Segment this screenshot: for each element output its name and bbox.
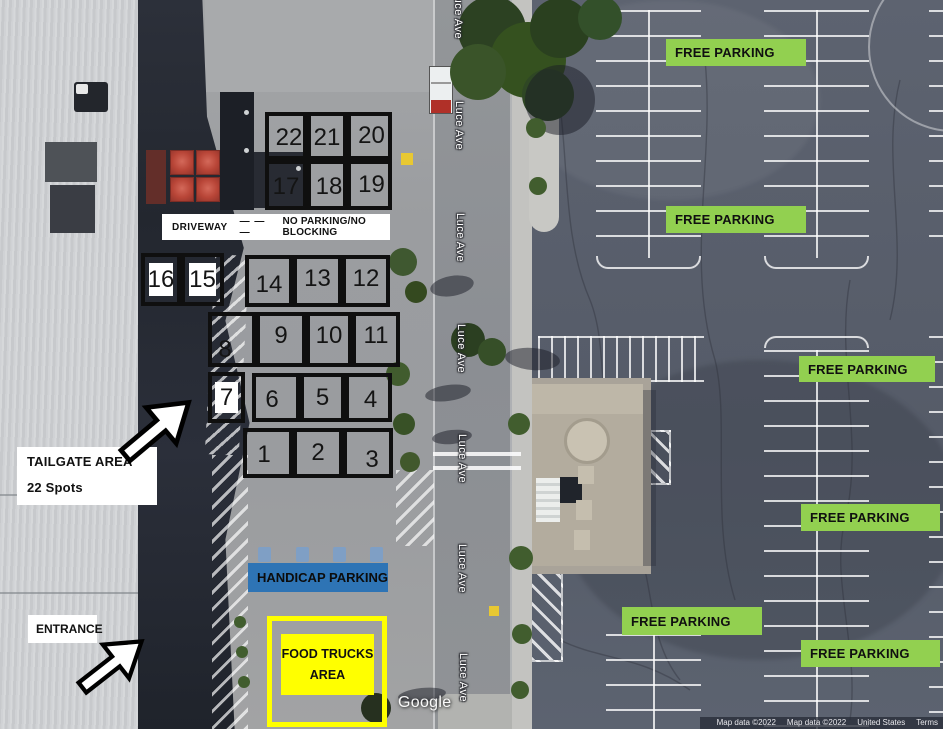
parking-spine-line xyxy=(653,634,655,729)
handicap-stall-glyph xyxy=(370,547,383,562)
map-data-text: Map data ©2022 xyxy=(717,717,776,729)
spot-box-19: 19 xyxy=(347,160,392,210)
handicap-text: HANDICAP PARKING xyxy=(257,570,388,585)
spot-box-21: 21 xyxy=(307,112,347,160)
parking-lines xyxy=(764,256,869,269)
crosswalk-line xyxy=(433,466,521,470)
entrance-label: ENTRANCE xyxy=(28,615,97,643)
spot-number: 13 xyxy=(304,267,331,291)
bush xyxy=(234,616,246,628)
bush xyxy=(238,676,250,688)
roof-seam xyxy=(0,592,138,594)
spot-number: 5 xyxy=(316,386,329,410)
handicap-stall-glyph xyxy=(296,547,309,562)
red-canopy xyxy=(170,177,194,202)
truck-rear xyxy=(431,100,451,113)
spot-box-6: 6 xyxy=(252,373,300,422)
spot-number: 9 xyxy=(274,324,287,348)
free-parking-label: FREE PARKING xyxy=(666,206,806,233)
parking-spine-line xyxy=(816,350,818,729)
parking-lines xyxy=(596,256,701,269)
spot-box-17: 17 xyxy=(265,160,307,210)
curb-yellow-mark xyxy=(401,153,413,165)
tree xyxy=(393,413,415,435)
curb-yellow-mark xyxy=(489,606,499,616)
spot-number: 11 xyxy=(364,324,389,348)
region-text: United States xyxy=(857,717,905,729)
maroon-structure xyxy=(146,150,166,204)
handicap-stall-glyph xyxy=(333,547,346,562)
truck-cab-line xyxy=(431,82,451,84)
building-shadow xyxy=(643,390,656,566)
spot-box-2: 2 xyxy=(293,428,343,478)
street-label-luce-ave: Luce Ave xyxy=(450,213,466,269)
street-label-luce-ave: Luce Ave xyxy=(452,434,468,490)
spot-box-15: 15 xyxy=(181,253,224,306)
tree xyxy=(400,452,420,472)
handicap-stall-glyph xyxy=(258,547,271,562)
street-label-luce-ave: Luce Ave xyxy=(449,101,465,157)
spot-number: 14 xyxy=(256,273,283,297)
google-watermark[interactable]: Google xyxy=(398,694,451,712)
terms-link[interactable]: Terms xyxy=(916,717,938,729)
red-canopy xyxy=(196,150,220,175)
map-attribution: Map data ©2022 Map data ©2022 United Sta… xyxy=(700,717,943,729)
spot-number: 20 xyxy=(358,124,385,148)
red-canopy xyxy=(170,150,194,175)
spot-box-20: 20 xyxy=(347,112,392,160)
food-trucks-line2: AREA xyxy=(310,668,345,682)
spot-box-22: 22 xyxy=(265,112,307,160)
free-parking-label: FREE PARKING xyxy=(801,640,940,667)
building-pad xyxy=(576,500,592,520)
building-round-structure xyxy=(564,418,610,464)
container-dot xyxy=(244,148,249,153)
spot-number: 15 xyxy=(189,268,216,292)
street-label-luce-ave: Luce Ave xyxy=(451,324,467,380)
tree xyxy=(389,248,417,276)
spot-number: 7 xyxy=(220,386,233,410)
parking-lines xyxy=(929,336,943,729)
spot-box-11: 11 xyxy=(352,312,400,367)
rooftop-unit xyxy=(50,185,95,233)
parking-lines xyxy=(538,336,704,382)
container-dot xyxy=(244,110,249,115)
bush xyxy=(236,646,248,658)
bush xyxy=(511,681,529,699)
concrete-area xyxy=(205,0,433,92)
spot-number: 12 xyxy=(353,267,380,291)
food-trucks-label: FOOD TRUCKS AREA xyxy=(281,634,374,695)
curb-hatch xyxy=(396,470,434,546)
tailgate-subtitle: 22 Spots xyxy=(27,480,157,495)
spot-number: 2 xyxy=(311,441,324,465)
spot-box-5: 5 xyxy=(300,373,345,422)
bush xyxy=(509,546,533,570)
parking-spine-line xyxy=(648,10,650,258)
street-label-luce-ave: Luce Ave xyxy=(453,653,469,709)
driveway-text: DRIVEWAY xyxy=(162,222,228,233)
entrance-text: ENTRANCE xyxy=(36,622,103,636)
bush xyxy=(526,118,546,138)
tree xyxy=(405,281,427,303)
spot-box-8: 8 xyxy=(208,312,256,367)
spot-number: 3 xyxy=(365,448,378,472)
rooftop-vehicle-cab xyxy=(76,84,88,94)
no-parking-text: NO PARKING/NO BLOCKING xyxy=(282,216,390,238)
free-parking-label: FREE PARKING xyxy=(799,356,935,382)
spot-number: 22 xyxy=(276,126,303,150)
free-parking-label: FREE PARKING xyxy=(666,39,806,66)
spot-number: 4 xyxy=(364,388,377,412)
driveway-dash-symbol: — — — xyxy=(240,216,271,238)
spot-number: 10 xyxy=(316,324,343,348)
spot-number: 21 xyxy=(314,126,341,150)
parking-lines xyxy=(929,10,943,258)
spot-box-3: 3 xyxy=(343,428,393,478)
spot-box-10: 10 xyxy=(306,312,352,367)
spot-number: 6 xyxy=(265,388,278,412)
spot-number: 18 xyxy=(316,175,343,199)
spot-number: 17 xyxy=(273,175,300,199)
driveway-note-label: DRIVEWAY — — — NO PARKING/NO BLOCKING xyxy=(162,214,390,240)
spot-number: 16 xyxy=(148,268,175,292)
building-roof-light xyxy=(531,384,643,414)
crosswalk-line xyxy=(433,452,521,456)
spot-box-13: 13 xyxy=(293,255,342,307)
food-trucks-line1: FOOD TRUCKS xyxy=(282,647,374,661)
spot-number: 1 xyxy=(257,443,270,467)
red-canopy xyxy=(196,177,220,202)
parking-lines xyxy=(764,350,869,729)
spot-box-1: 1 xyxy=(243,428,293,478)
spot-box-14: 14 xyxy=(245,255,293,307)
parking-lines xyxy=(606,634,701,729)
spot-box-7: 7 xyxy=(208,372,245,423)
free-parking-label: FREE PARKING xyxy=(622,607,762,635)
spot-box-4: 4 xyxy=(345,373,392,422)
spot-number: 19 xyxy=(358,173,385,197)
tree xyxy=(450,44,506,100)
spot-number: 8 xyxy=(218,338,231,362)
free-parking-label: FREE PARKING xyxy=(801,504,940,531)
no-park-hatch-zone xyxy=(529,570,563,662)
rooftop-unit xyxy=(45,142,97,182)
street-label-luce-ave: Luce Ave xyxy=(448,0,464,46)
spot-box-9: 9 xyxy=(256,312,306,367)
tree xyxy=(478,338,506,366)
building-canopy xyxy=(536,478,560,522)
building-pad xyxy=(578,466,594,484)
building-pad xyxy=(574,530,590,550)
parking-lines xyxy=(764,336,869,348)
handicap-parking-label: HANDICAP PARKING xyxy=(248,563,388,592)
tailgate-parking-map: 22212017181916151413128910117654123 Luce… xyxy=(0,0,943,729)
map-data-text: Map data ©2022 xyxy=(787,717,846,729)
spot-box-18: 18 xyxy=(307,160,347,210)
bush xyxy=(529,177,547,195)
bush xyxy=(512,624,532,644)
spot-box-16: 16 xyxy=(141,253,181,306)
street-label-luce-ave: Luce Ave xyxy=(452,544,468,600)
parking-spine-line xyxy=(816,10,818,258)
bush xyxy=(508,413,530,435)
spot-box-12: 12 xyxy=(342,255,390,307)
